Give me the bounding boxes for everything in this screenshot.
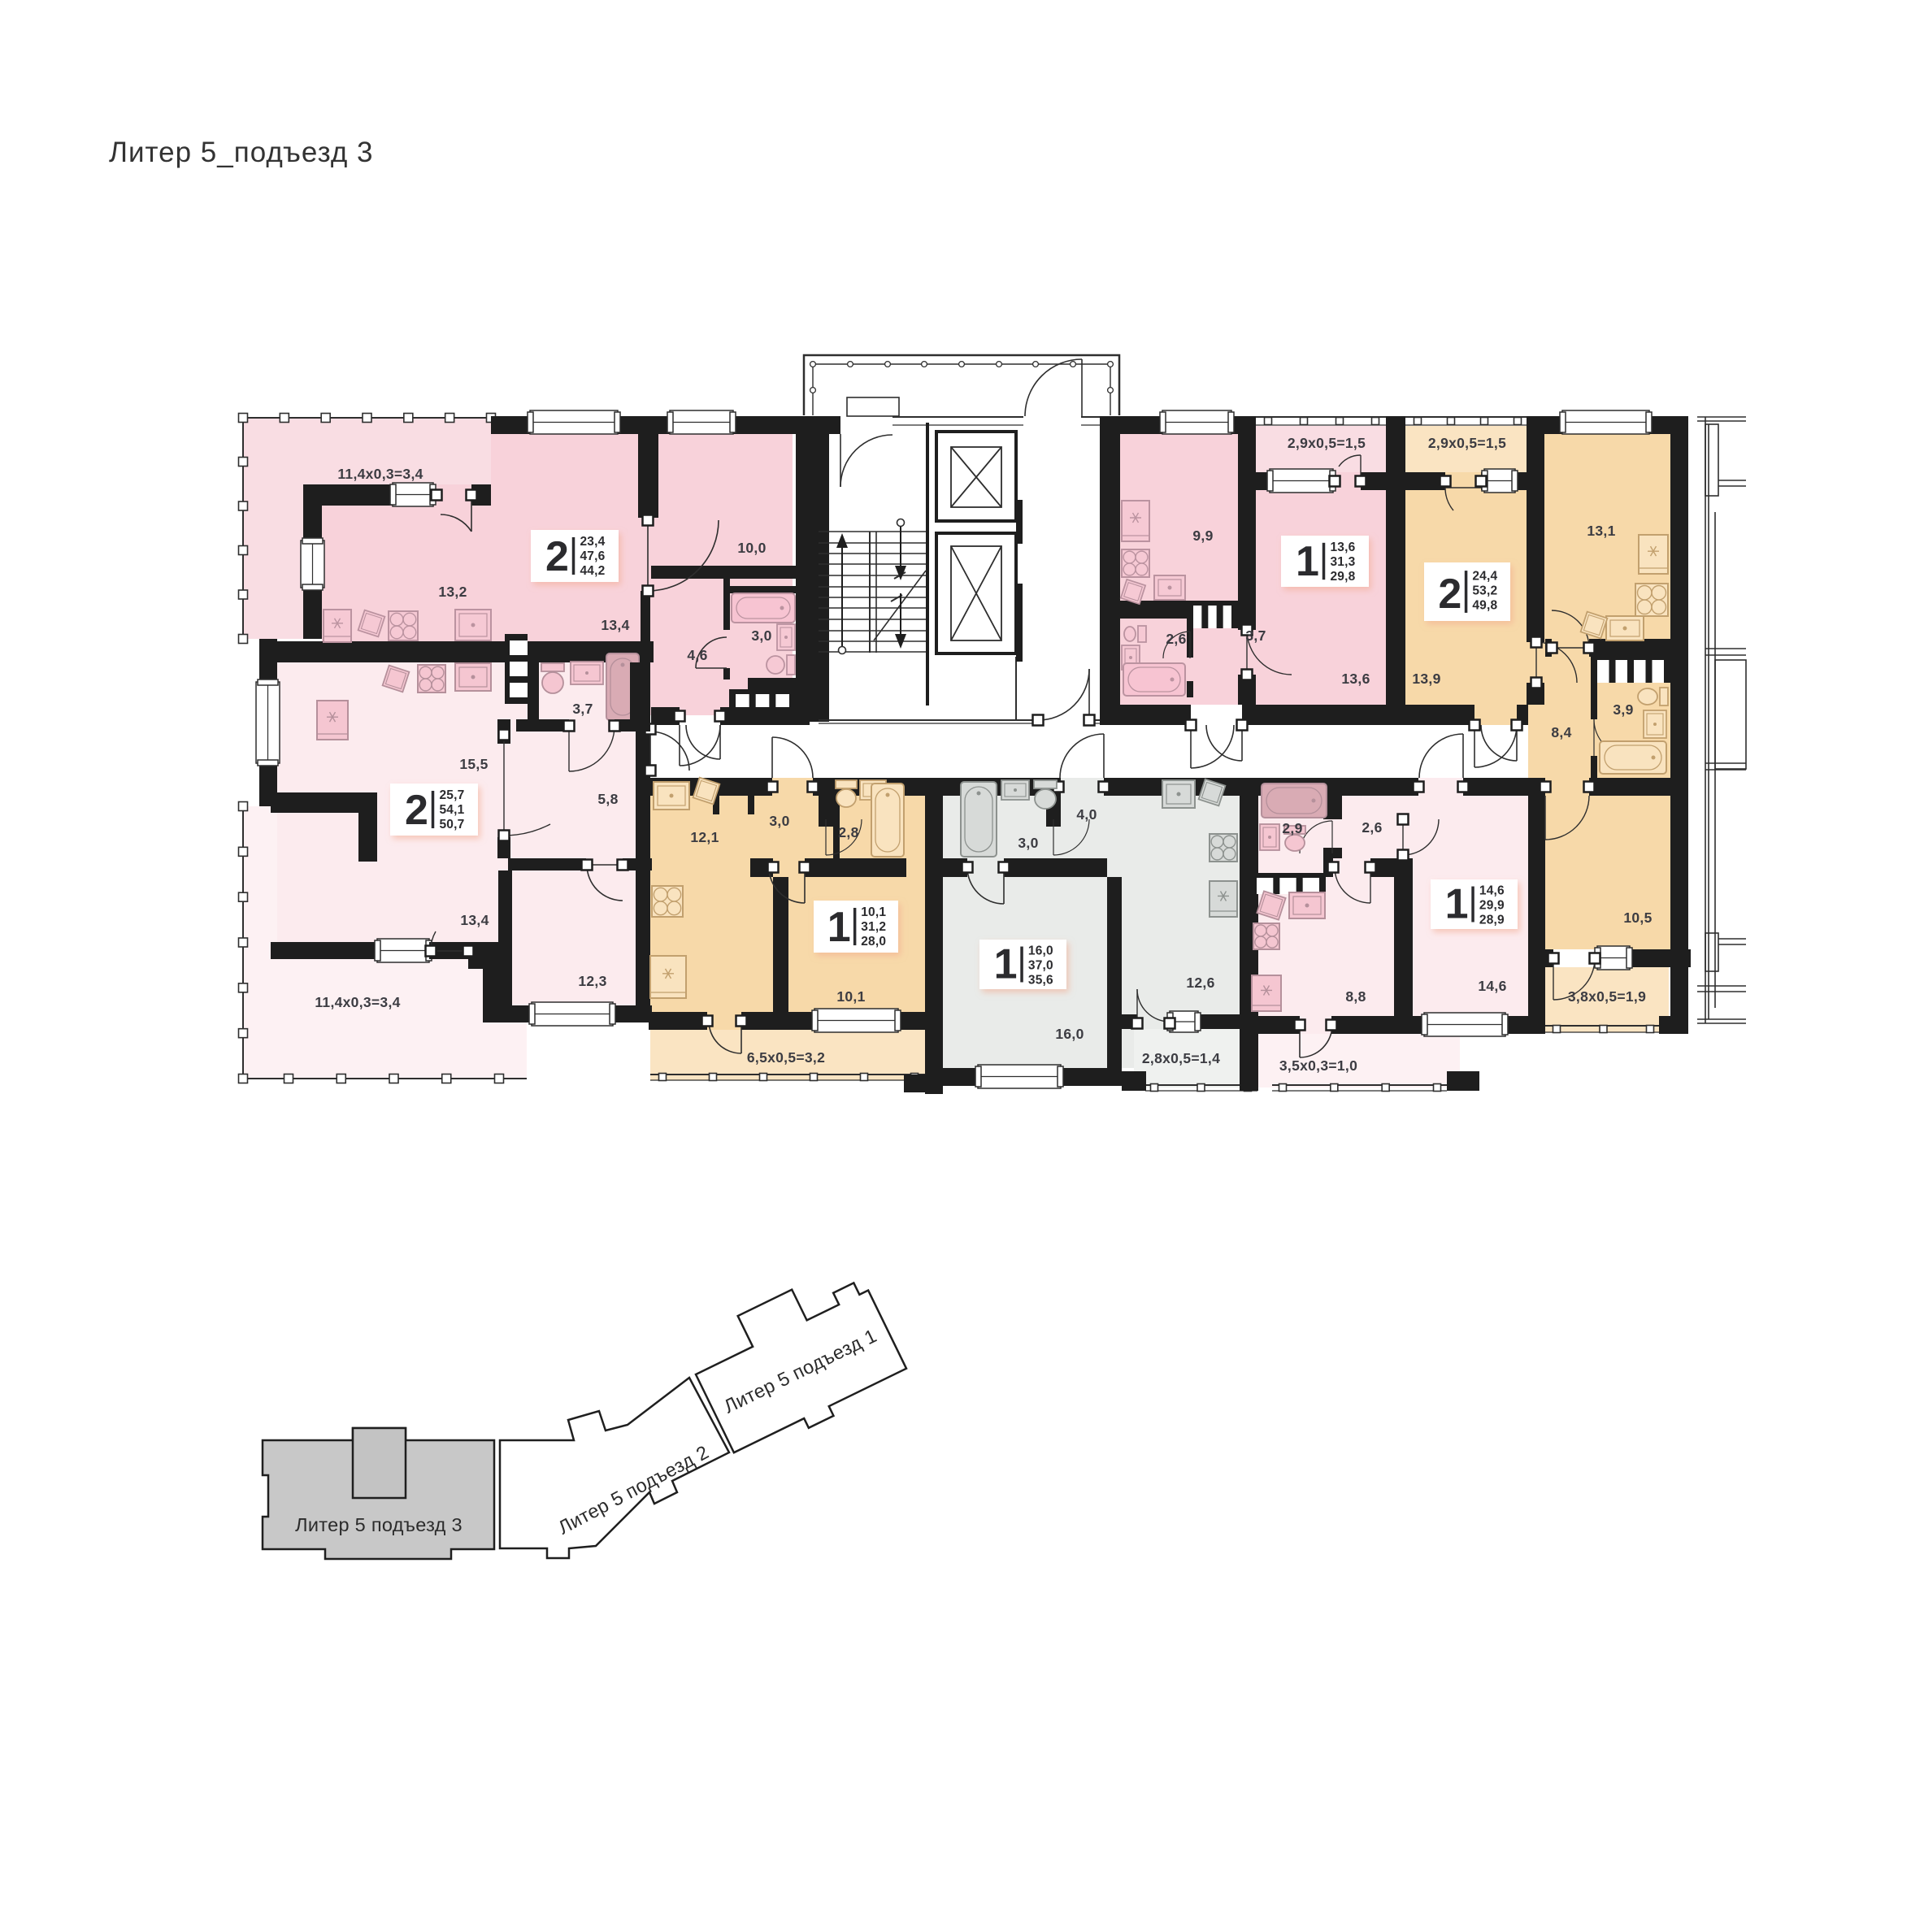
svg-text:3,7: 3,7 — [572, 701, 593, 717]
svg-text:28,0: 28,0 — [861, 935, 886, 949]
svg-text:6,5х0,5=3,2: 6,5х0,5=3,2 — [747, 1049, 825, 1066]
svg-text:2,9х0,5=1,5: 2,9х0,5=1,5 — [1288, 435, 1366, 451]
svg-text:2,9х0,5=1,5: 2,9х0,5=1,5 — [1428, 435, 1506, 451]
svg-text:14,6: 14,6 — [1479, 884, 1505, 897]
svg-text:Литер 5 подъезд 3: Литер 5 подъезд 3 — [295, 1514, 463, 1535]
svg-text:12,3: 12,3 — [578, 973, 606, 989]
svg-text:1: 1 — [994, 941, 1018, 988]
svg-text:10,5: 10,5 — [1623, 910, 1652, 926]
svg-text:3,5х0,3=1,0: 3,5х0,3=1,0 — [1279, 1057, 1357, 1074]
svg-text:3,0: 3,0 — [769, 813, 789, 829]
svg-text:2,8: 2,8 — [838, 824, 858, 840]
svg-text:24,4: 24,4 — [1472, 570, 1497, 584]
svg-text:15,5: 15,5 — [459, 756, 488, 772]
svg-text:8,4: 8,4 — [1551, 724, 1571, 740]
svg-text:5,8: 5,8 — [597, 791, 618, 807]
svg-text:13,4: 13,4 — [460, 912, 489, 928]
svg-text:50,7: 50,7 — [439, 818, 464, 831]
svg-text:13,6: 13,6 — [1330, 541, 1355, 554]
svg-text:13,6: 13,6 — [1341, 671, 1370, 687]
svg-text:16,0: 16,0 — [1028, 944, 1053, 957]
svg-text:3,8х0,5=1,9: 3,8х0,5=1,9 — [1568, 988, 1646, 1005]
svg-text:2: 2 — [1438, 571, 1461, 618]
svg-text:29,8: 29,8 — [1330, 570, 1355, 584]
svg-text:28,9: 28,9 — [1479, 913, 1505, 927]
svg-text:11,4х0,3=3,4: 11,4х0,3=3,4 — [315, 994, 400, 1010]
svg-text:Литер 5_подъезд 3: Литер 5_подъезд 3 — [109, 137, 374, 168]
svg-text:13,2: 13,2 — [438, 584, 467, 600]
svg-text:10,0: 10,0 — [737, 540, 766, 556]
svg-text:16,0: 16,0 — [1055, 1026, 1084, 1042]
svg-text:10,1: 10,1 — [836, 988, 865, 1005]
svg-text:3,9: 3,9 — [1613, 701, 1633, 718]
svg-text:49,8: 49,8 — [1472, 599, 1497, 613]
svg-text:14,6: 14,6 — [1478, 978, 1506, 994]
svg-text:44,2: 44,2 — [580, 564, 605, 578]
svg-text:2,6: 2,6 — [1166, 631, 1186, 647]
svg-text:1: 1 — [1296, 538, 1319, 585]
svg-text:2: 2 — [545, 533, 569, 580]
svg-text:9,9: 9,9 — [1192, 528, 1213, 544]
svg-text:11,4х0,3=3,4: 11,4х0,3=3,4 — [337, 466, 423, 482]
svg-text:2,8х0,5=1,4: 2,8х0,5=1,4 — [1142, 1050, 1220, 1066]
svg-text:53,2: 53,2 — [1472, 584, 1497, 598]
svg-text:1: 1 — [827, 904, 851, 951]
svg-text:13,9: 13,9 — [1412, 671, 1440, 687]
svg-text:13,1: 13,1 — [1587, 523, 1615, 539]
svg-text:31,3: 31,3 — [1330, 555, 1355, 569]
svg-text:47,6: 47,6 — [580, 549, 605, 563]
svg-text:12,1: 12,1 — [690, 829, 719, 845]
svg-text:2: 2 — [405, 787, 428, 834]
svg-text:3,7: 3,7 — [1245, 627, 1266, 644]
svg-text:31,2: 31,2 — [861, 920, 886, 934]
svg-text:37,0: 37,0 — [1028, 958, 1053, 972]
svg-text:10,1: 10,1 — [861, 905, 886, 919]
svg-text:2,6: 2,6 — [1362, 819, 1382, 836]
svg-text:3,0: 3,0 — [1018, 835, 1038, 851]
svg-text:23,4: 23,4 — [580, 535, 605, 549]
svg-text:35,6: 35,6 — [1028, 973, 1053, 987]
svg-text:8,8: 8,8 — [1345, 988, 1366, 1005]
svg-text:13,4: 13,4 — [601, 617, 629, 633]
svg-text:1: 1 — [1445, 881, 1469, 928]
svg-text:4,6: 4,6 — [687, 647, 707, 663]
svg-text:2,9: 2,9 — [1282, 820, 1302, 836]
svg-text:25,7: 25,7 — [439, 788, 464, 802]
svg-text:54,1: 54,1 — [439, 803, 464, 817]
svg-text:3,0: 3,0 — [751, 627, 771, 644]
svg-text:12,6: 12,6 — [1186, 975, 1214, 991]
svg-text:29,9: 29,9 — [1479, 898, 1505, 912]
svg-text:4,0: 4,0 — [1076, 806, 1097, 823]
